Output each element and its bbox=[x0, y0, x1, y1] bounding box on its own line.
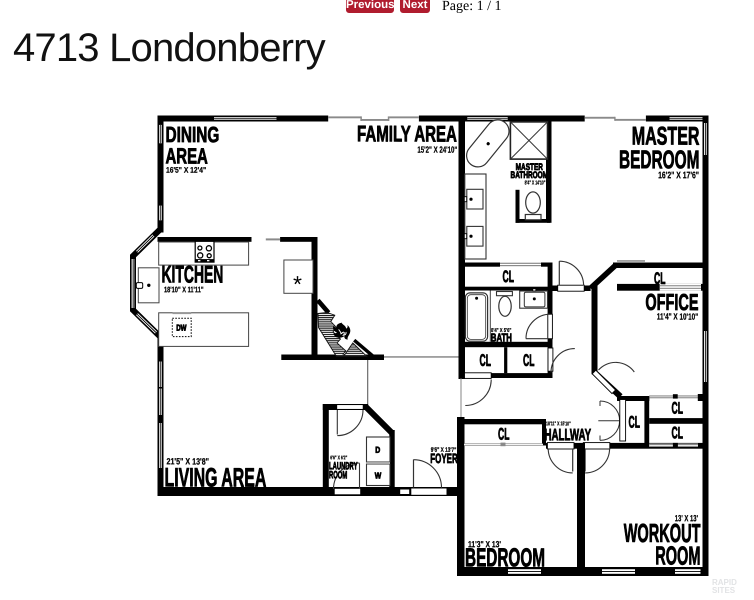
svg-text:HALLWAY: HALLWAY bbox=[544, 426, 591, 444]
svg-text:16'2" X 17'6": 16'2" X 17'6" bbox=[658, 170, 699, 180]
svg-text:18'10" X 11'11": 18'10" X 11'11" bbox=[164, 286, 204, 294]
svg-text:21'5" X 13'8": 21'5" X 13'8" bbox=[166, 457, 209, 467]
svg-text:CL: CL bbox=[502, 267, 513, 286]
svg-text:11'4" X 10'10": 11'4" X 10'10" bbox=[657, 311, 699, 321]
svg-text:*: * bbox=[293, 271, 302, 297]
svg-text:CL: CL bbox=[654, 269, 665, 288]
svg-text:ROOM: ROOM bbox=[329, 468, 347, 480]
svg-text:KITCHEN: KITCHEN bbox=[161, 262, 223, 289]
svg-text:SITES: SITES bbox=[712, 586, 736, 595]
svg-text:W: W bbox=[375, 471, 382, 481]
svg-text:CL: CL bbox=[628, 412, 639, 431]
svg-text:CL: CL bbox=[671, 423, 682, 442]
svg-text:ROOM: ROOM bbox=[655, 542, 700, 570]
svg-text:BATHROOM: BATHROOM bbox=[511, 170, 549, 181]
svg-text:9'6" X 13'7": 9'6" X 13'7" bbox=[431, 447, 457, 454]
svg-text:CL: CL bbox=[523, 351, 534, 370]
svg-text:15'2" X 24'10": 15'2" X 24'10" bbox=[417, 144, 457, 155]
svg-text:CL: CL bbox=[671, 398, 682, 417]
svg-text:CL: CL bbox=[498, 424, 509, 443]
svg-text:FOYER: FOYER bbox=[430, 452, 457, 467]
svg-text:6'6" X 6'2": 6'6" X 6'2" bbox=[330, 455, 347, 461]
svg-text:8'4" X 14'10": 8'4" X 14'10" bbox=[525, 180, 546, 187]
svg-text:8'4" X 5'6": 8'4" X 5'6" bbox=[491, 327, 512, 334]
svg-text:16'5" X 12'4": 16'5" X 12'4" bbox=[166, 165, 207, 175]
svg-text:CL: CL bbox=[479, 351, 490, 370]
svg-text:11'3" X 13': 11'3" X 13' bbox=[468, 539, 501, 549]
svg-text:D: D bbox=[375, 445, 380, 455]
svg-text:13' X 13': 13' X 13' bbox=[675, 513, 698, 524]
svg-text:18'11" X 15'10": 18'11" X 15'10" bbox=[546, 421, 571, 427]
svg-text:DW: DW bbox=[176, 323, 187, 333]
